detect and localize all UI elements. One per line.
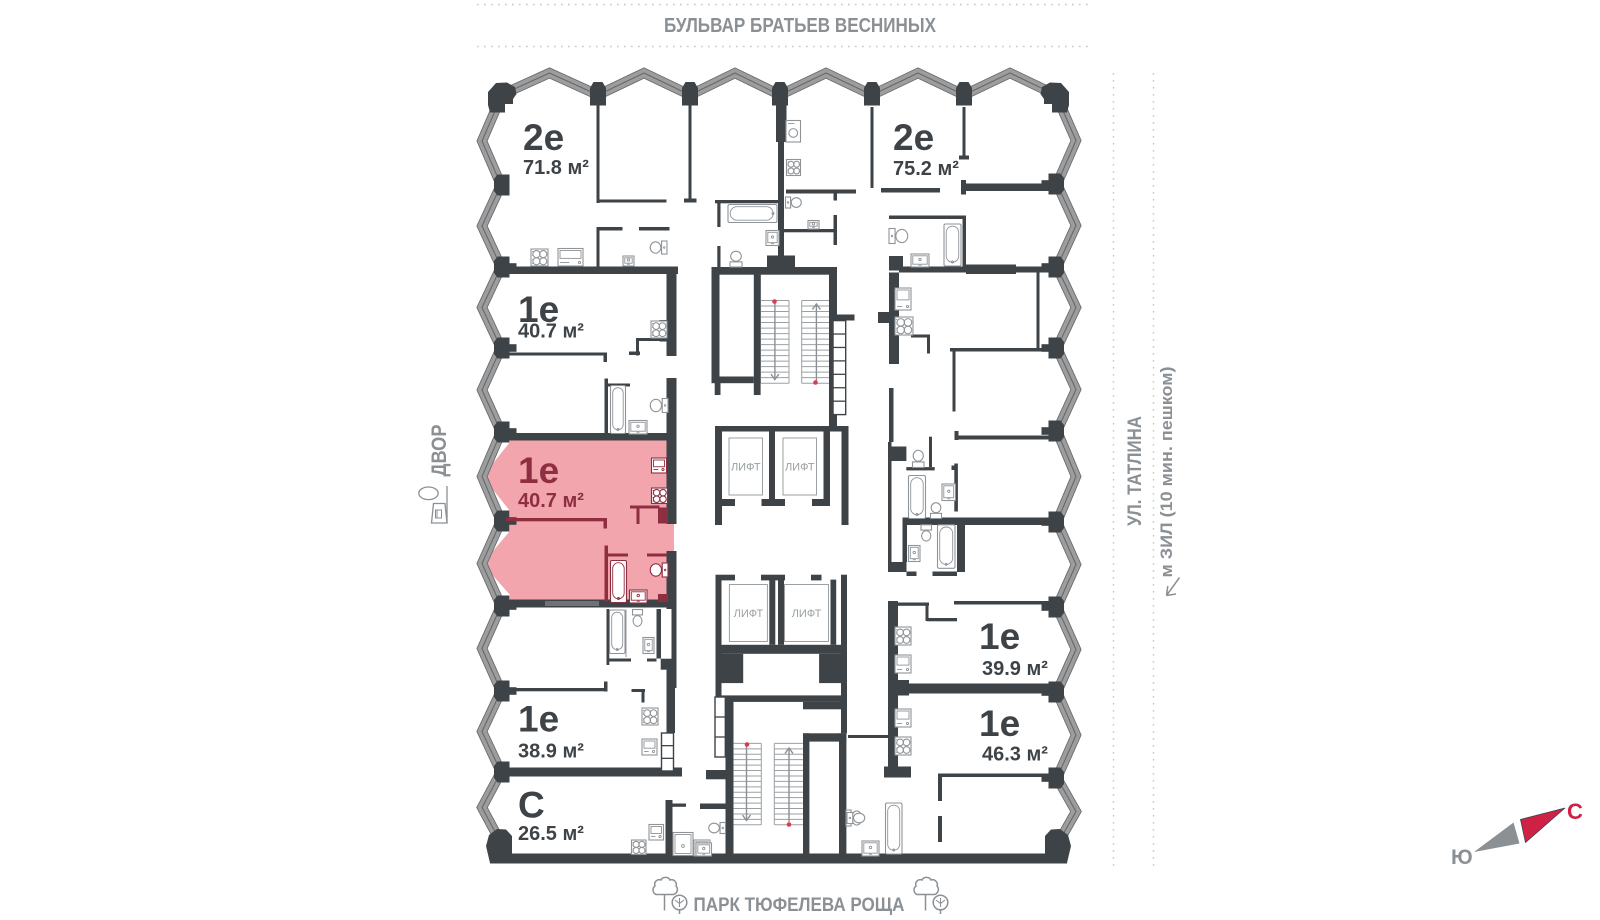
svg-text:1е: 1е bbox=[518, 699, 559, 740]
svg-text:39.9 м²: 39.9 м² bbox=[982, 658, 1048, 680]
svg-text:ЛИФТ: ЛИФТ bbox=[785, 461, 815, 473]
svg-text:С: С bbox=[518, 785, 545, 826]
svg-text:УЛ. ТАТЛИНА: УЛ. ТАТЛИНА bbox=[1125, 416, 1146, 526]
svg-text:ДВОР: ДВОР bbox=[428, 425, 451, 477]
svg-text:1е: 1е bbox=[518, 450, 559, 491]
svg-text:38.9 м²: 38.9 м² bbox=[518, 741, 584, 763]
svg-text:БУЛЬВАР БРАТЬЕВ ВЕСНИНЫХ: БУЛЬВАР БРАТЬЕВ ВЕСНИНЫХ bbox=[664, 14, 936, 37]
svg-text:40.7 м²: 40.7 м² bbox=[518, 490, 584, 512]
svg-text:1е: 1е bbox=[979, 616, 1020, 657]
svg-text:1е: 1е bbox=[979, 703, 1020, 744]
svg-text:2е: 2е bbox=[523, 117, 564, 158]
svg-text:ЛИФТ: ЛИФТ bbox=[731, 461, 761, 473]
svg-text:71.8 м²: 71.8 м² bbox=[523, 157, 589, 179]
svg-text:40.7 м²: 40.7 м² bbox=[518, 321, 584, 343]
svg-text:ПАРК ТЮФЕЛЕВА РОЩА: ПАРК ТЮФЕЛЕВА РОЩА bbox=[694, 895, 905, 916]
svg-text:м ЗИЛ (10 мин. пешком): м ЗИЛ (10 мин. пешком) bbox=[1158, 367, 1176, 578]
svg-text:46.3 м²: 46.3 м² bbox=[982, 744, 1048, 766]
svg-text:ЛИФТ: ЛИФТ bbox=[792, 608, 822, 620]
svg-text:75.2 м²: 75.2 м² bbox=[893, 158, 959, 180]
svg-text:Ю: Ю bbox=[1451, 846, 1473, 869]
svg-text:ЛИФТ: ЛИФТ bbox=[734, 608, 764, 620]
svg-text:С: С bbox=[1567, 799, 1583, 824]
svg-text:2е: 2е bbox=[893, 117, 934, 158]
svg-text:26.5 м²: 26.5 м² bbox=[518, 823, 584, 845]
